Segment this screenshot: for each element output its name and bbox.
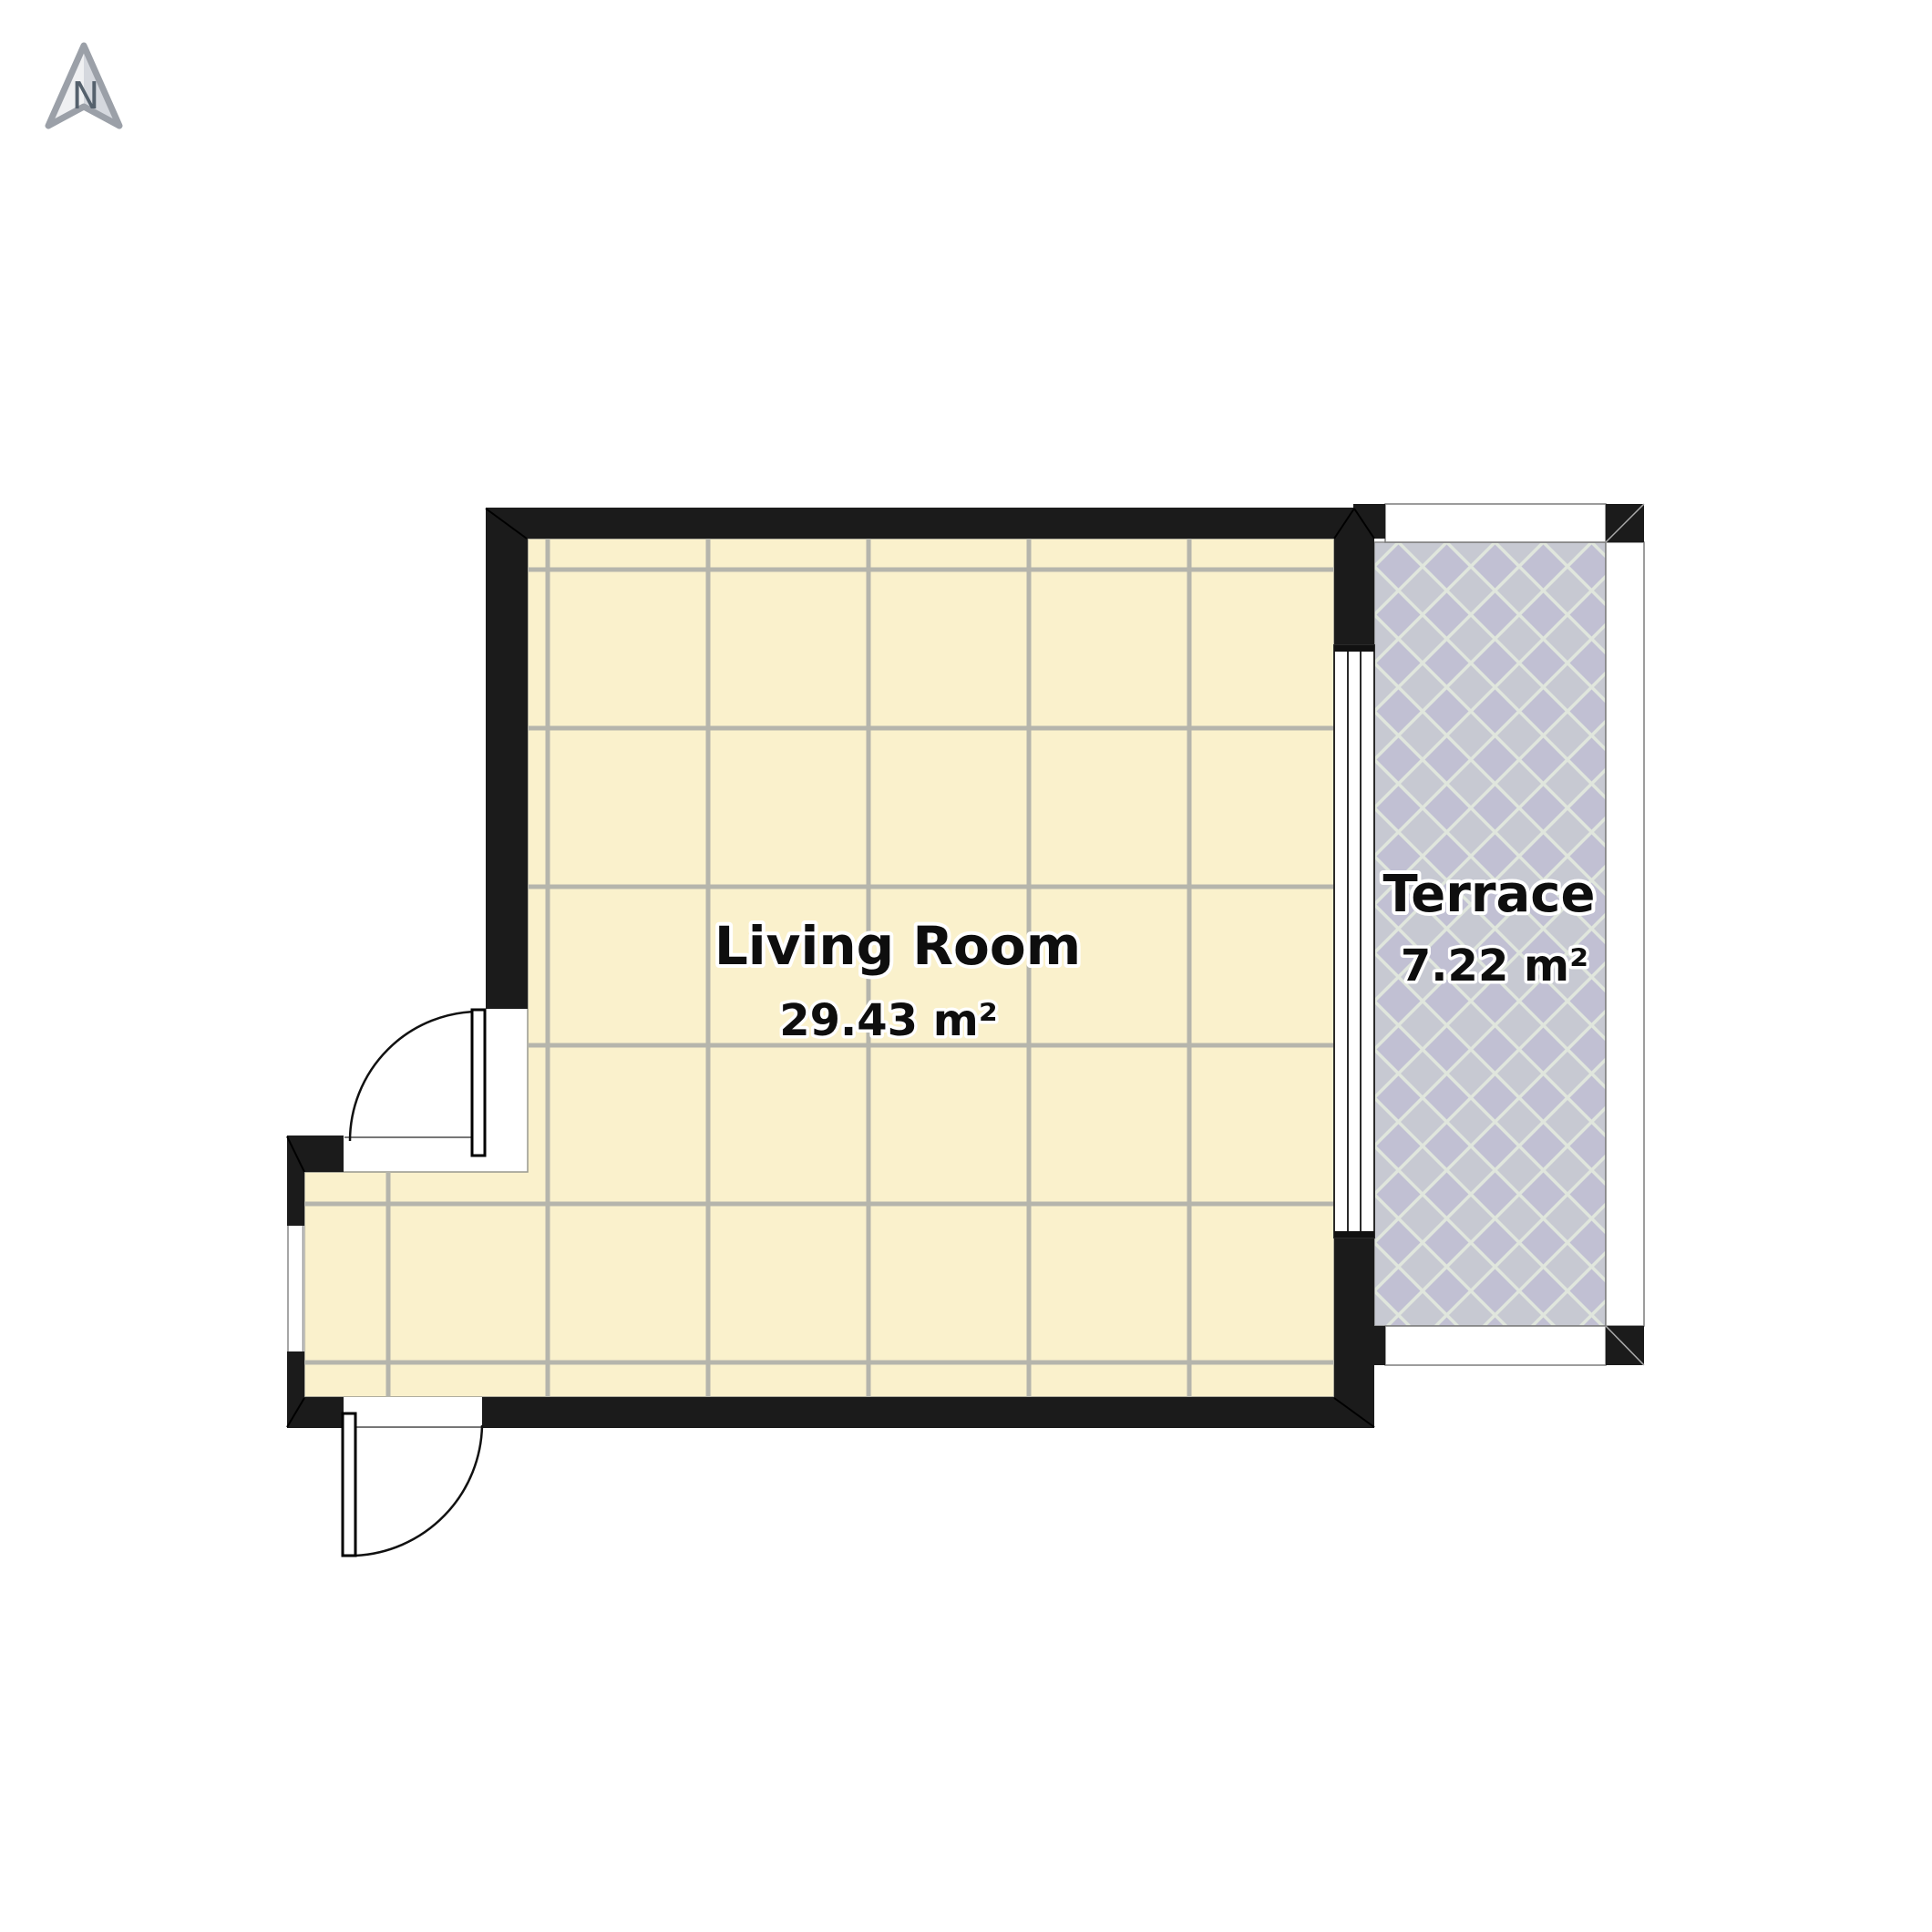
- terrace: [1353, 504, 1644, 1365]
- terrace-floor: [1374, 542, 1606, 1326]
- compass-north-letter: N: [72, 74, 100, 118]
- terrace-sliding-window: [1334, 645, 1374, 1238]
- terrace-area: 7.22 m²: [1401, 940, 1588, 992]
- floor-plan-page: Living Room 29.43 m² Terrace 7.22 m² N: [0, 0, 1932, 1932]
- living-room-area: 29.43 m²: [779, 995, 998, 1046]
- wall-left-main: [486, 508, 528, 1009]
- living-room-label: Living Room: [714, 915, 1081, 977]
- floor-plan-canvas: Living Room 29.43 m² Terrace 7.22 m² N: [0, 0, 1932, 1932]
- recess-door-leaf: [472, 1010, 485, 1156]
- entry-door-leaf: [343, 1413, 355, 1556]
- terrace-railing-bottom: [1385, 1326, 1606, 1365]
- left-window: [286, 1226, 304, 1351]
- terrace-railing-right: [1606, 542, 1644, 1326]
- wall-left-ext-lower: [287, 1351, 304, 1428]
- terrace-label: Terrace: [1383, 865, 1596, 924]
- terrace-railing-top: [1385, 504, 1606, 542]
- wall-top: [486, 508, 1353, 539]
- entry-door-opening: [344, 1397, 482, 1429]
- wall-left-ext-upper: [287, 1136, 304, 1226]
